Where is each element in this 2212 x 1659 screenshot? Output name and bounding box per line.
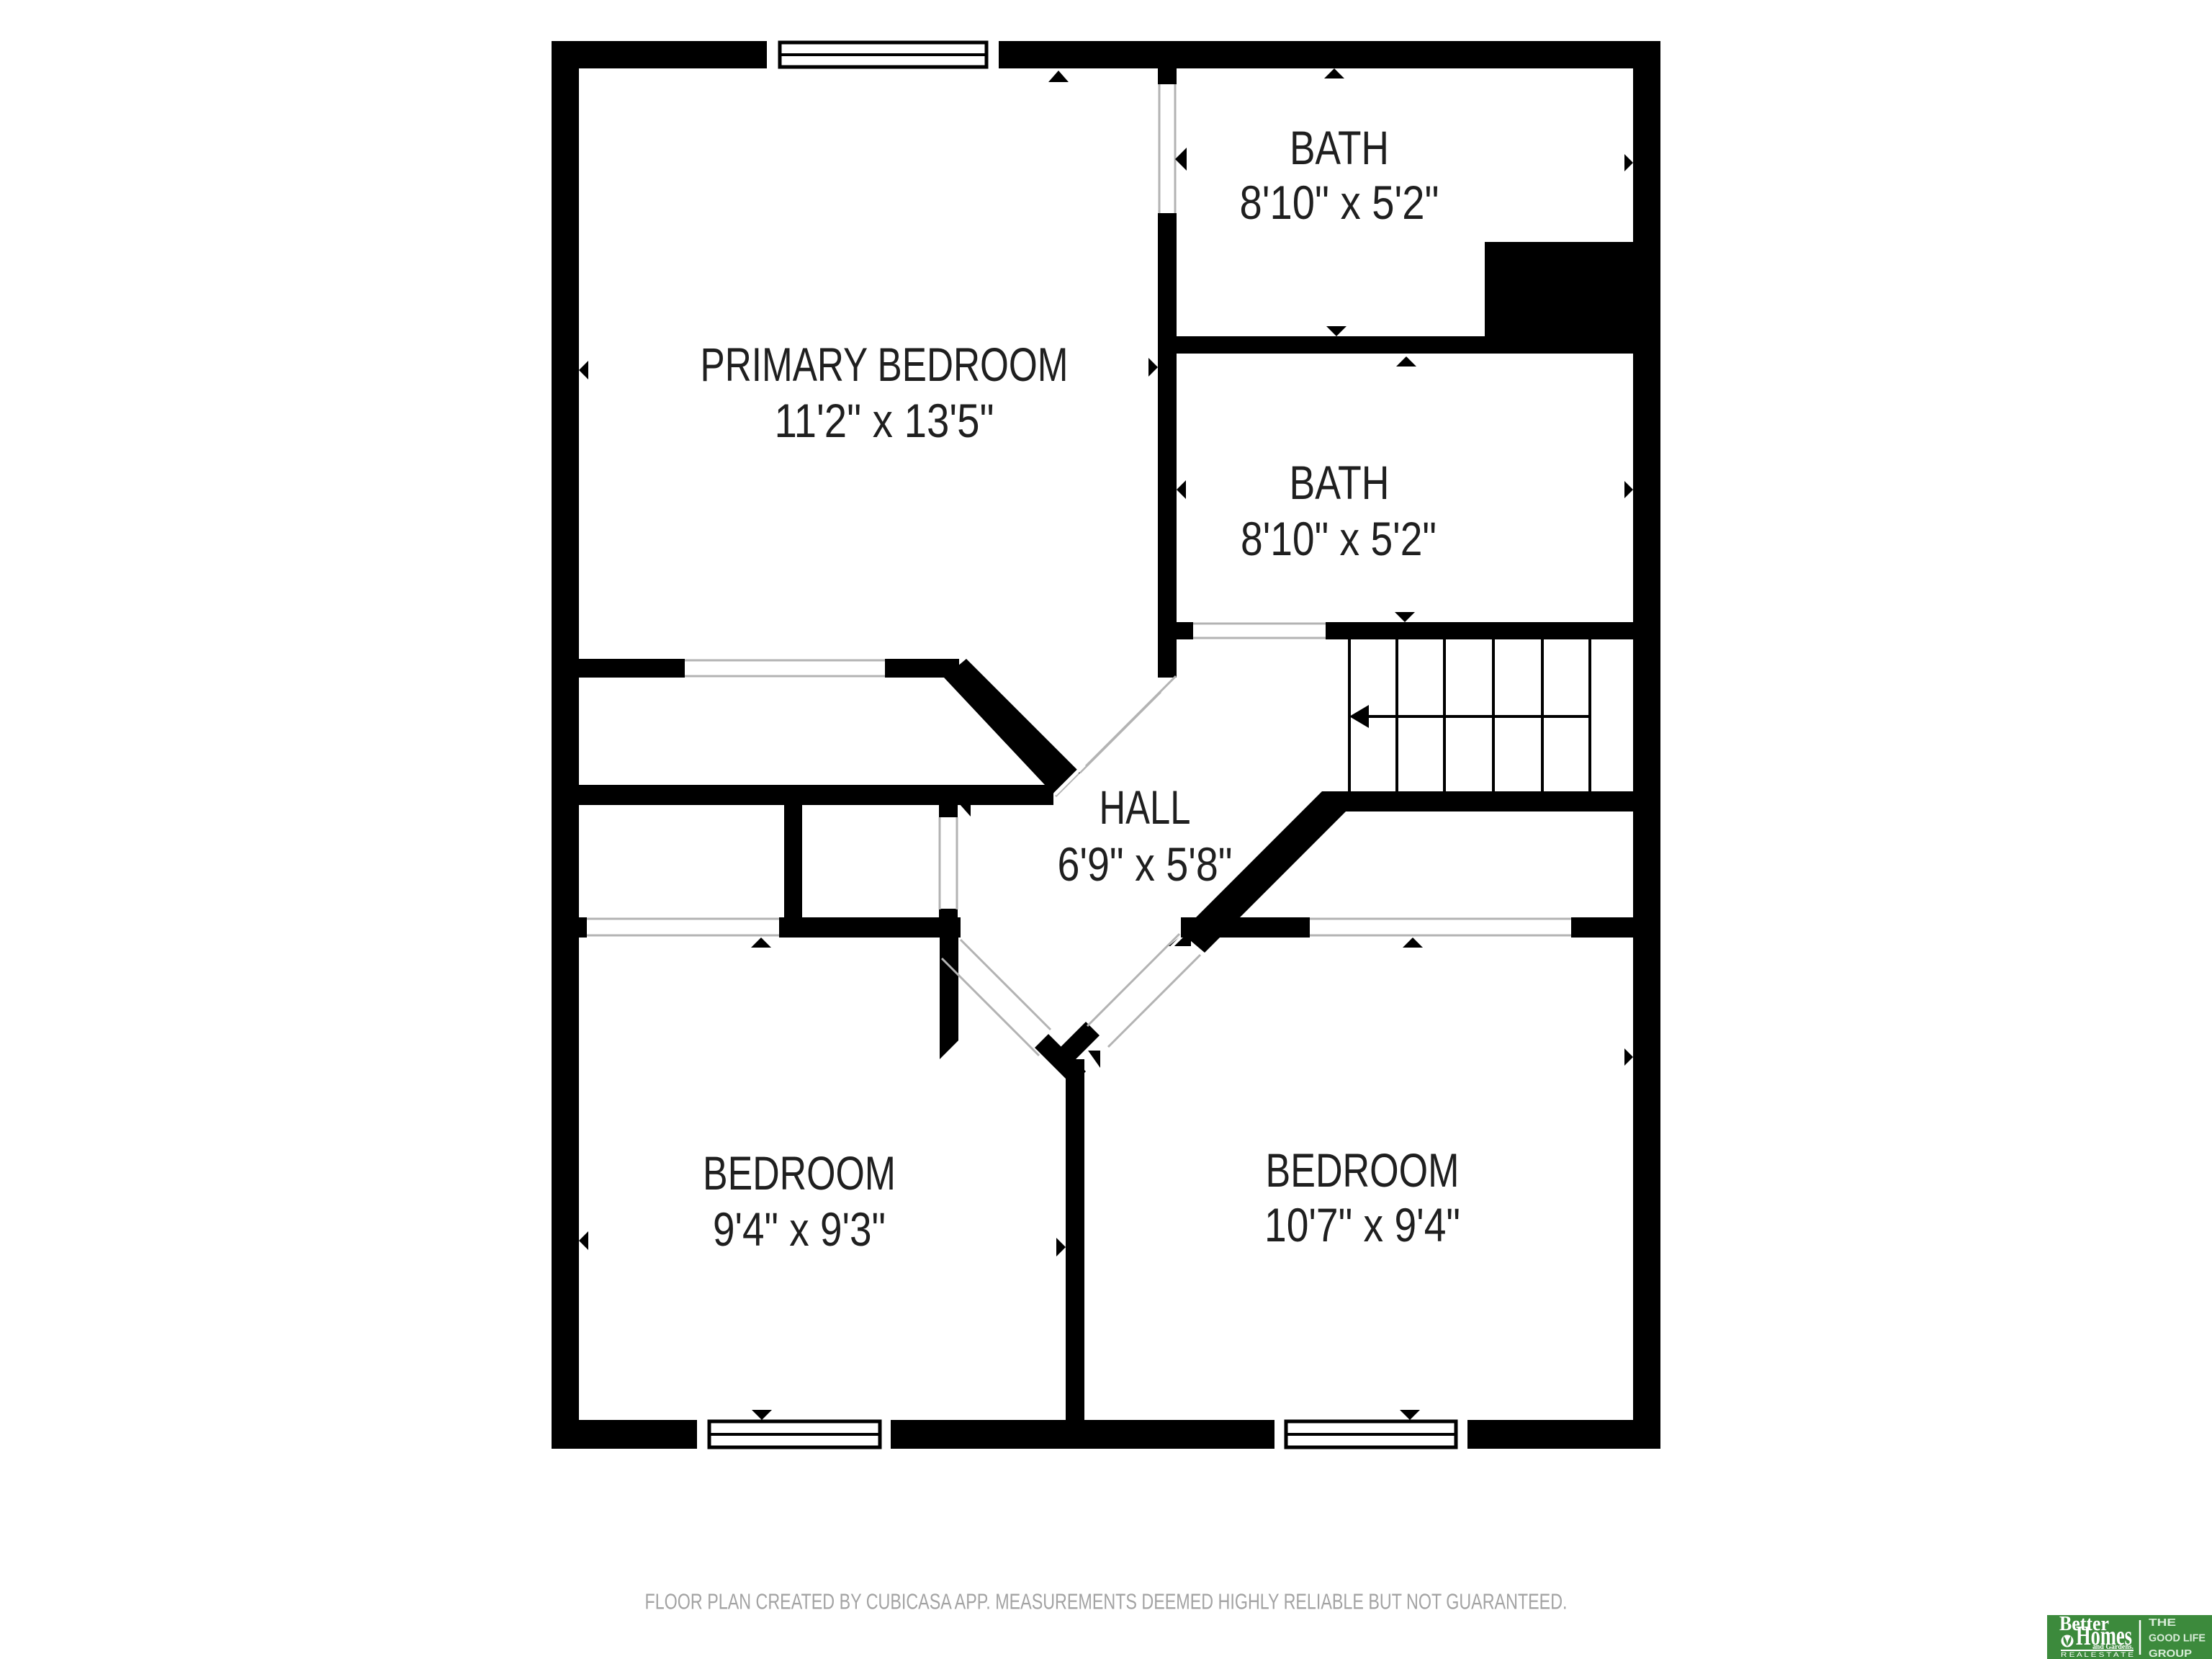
svg-text:FLOOR PLAN CREATED BY CUBICASA: FLOOR PLAN CREATED BY CUBICASA APP. MEAS…: [645, 1589, 1568, 1614]
svg-text:THE: THE: [2149, 1617, 2176, 1629]
svg-text:HALL: HALL: [1100, 781, 1191, 834]
svg-text:BEDROOM: BEDROOM: [1266, 1143, 1460, 1197]
svg-text:GROUP: GROUP: [2149, 1647, 2192, 1659]
svg-text:PRIMARY BEDROOM: PRIMARY BEDROOM: [701, 338, 1069, 391]
svg-text:9'4" x 9'3": 9'4" x 9'3": [713, 1202, 886, 1256]
svg-text:10'7" x 9'4": 10'7" x 9'4": [1264, 1198, 1460, 1251]
svg-text:8'10" x 5'2": 8'10" x 5'2": [1241, 512, 1437, 565]
svg-text:GOOD LIFE: GOOD LIFE: [2149, 1632, 2206, 1645]
svg-text:8'10" x 5'2": 8'10" x 5'2": [1240, 176, 1439, 229]
svg-text:11'2" x 13'5": 11'2" x 13'5": [775, 394, 994, 447]
svg-text:BATH: BATH: [1290, 456, 1390, 509]
svg-text:6'9" x 5'8": 6'9" x 5'8": [1058, 837, 1233, 891]
svg-text:BATH: BATH: [1290, 121, 1389, 174]
svg-text:BEDROOM: BEDROOM: [703, 1146, 896, 1200]
svg-text:R E A L E S T A T E: R E A L E S T A T E: [2061, 1651, 2134, 1658]
